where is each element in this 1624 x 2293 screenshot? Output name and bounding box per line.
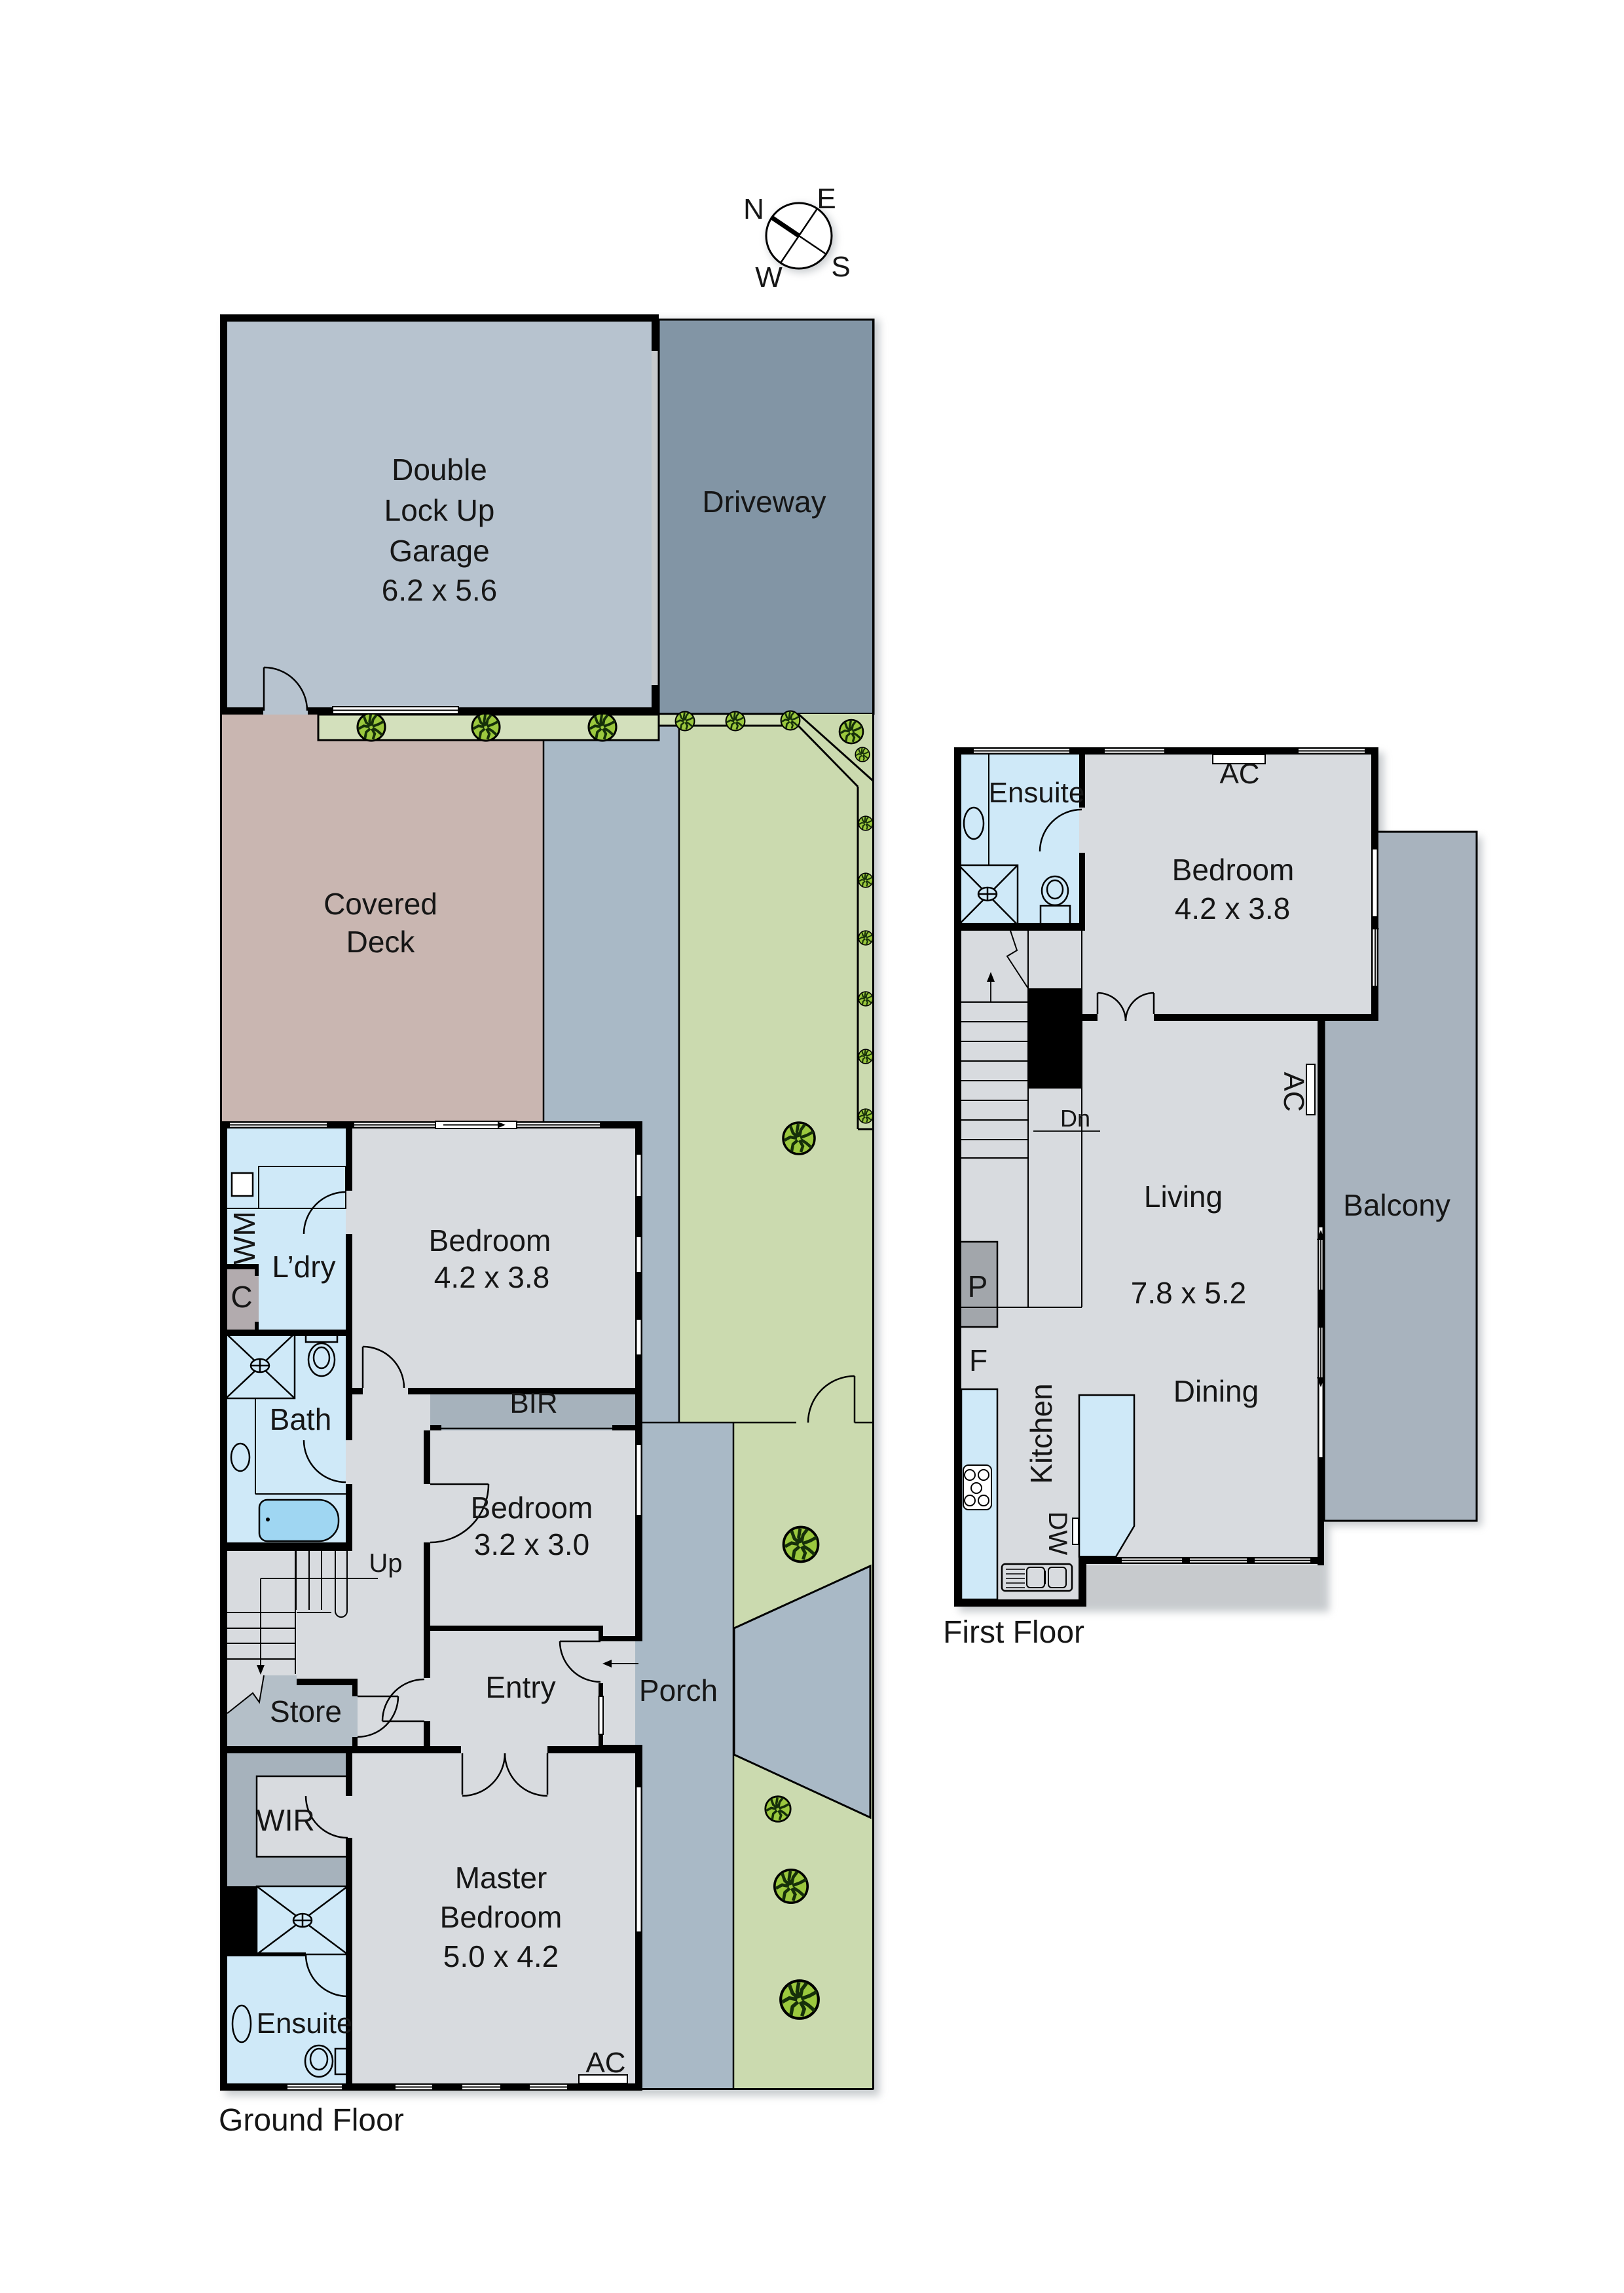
svg-text:Bath: Bath bbox=[270, 1402, 332, 1436]
svg-text:5.0 x 4.2: 5.0 x 4.2 bbox=[443, 1939, 559, 1973]
svg-text:Balcony: Balcony bbox=[1343, 1188, 1450, 1222]
svg-text:Kitchen: Kitchen bbox=[1024, 1383, 1058, 1483]
svg-text:AC: AC bbox=[1278, 1072, 1310, 1111]
svg-text:Deck: Deck bbox=[346, 925, 416, 959]
svg-text:Master: Master bbox=[455, 1861, 547, 1895]
svg-text:Garage: Garage bbox=[389, 534, 489, 568]
svg-text:First Floor: First Floor bbox=[943, 1615, 1084, 1650]
svg-text:S: S bbox=[831, 251, 850, 283]
svg-text:WIR: WIR bbox=[256, 1803, 314, 1837]
svg-text:Bedroom: Bedroom bbox=[471, 1491, 593, 1525]
svg-text:N: N bbox=[743, 193, 764, 225]
svg-text:Bedroom: Bedroom bbox=[440, 1900, 563, 1934]
svg-text:Living: Living bbox=[1144, 1180, 1223, 1214]
svg-text:7.8 x 5.2: 7.8 x 5.2 bbox=[1131, 1276, 1246, 1310]
svg-text:C: C bbox=[231, 1280, 252, 1314]
svg-text:L’dry: L’dry bbox=[272, 1250, 335, 1284]
svg-text:Ensuite: Ensuite bbox=[989, 777, 1085, 809]
svg-text:Covered: Covered bbox=[323, 887, 437, 921]
svg-text:Dn: Dn bbox=[1060, 1105, 1090, 1132]
svg-text:4.2 x 3.8: 4.2 x 3.8 bbox=[1175, 891, 1290, 925]
svg-text:3.2 x 3.0: 3.2 x 3.0 bbox=[474, 1527, 589, 1561]
svg-text:Double: Double bbox=[392, 453, 487, 487]
svg-text:Store: Store bbox=[270, 1694, 342, 1728]
svg-text:Up: Up bbox=[369, 1549, 402, 1578]
svg-text:Porch: Porch bbox=[639, 1673, 718, 1707]
svg-text:6.2 x 5.6: 6.2 x 5.6 bbox=[382, 573, 497, 607]
svg-text:Bedroom: Bedroom bbox=[429, 1223, 551, 1258]
svg-text:AC: AC bbox=[585, 2047, 625, 2079]
svg-text:Driveway: Driveway bbox=[702, 485, 826, 519]
svg-text:WM: WM bbox=[227, 1211, 261, 1265]
svg-text:Lock Up: Lock Up bbox=[384, 493, 495, 527]
svg-text:Entry: Entry bbox=[485, 1670, 555, 1704]
svg-text:BIR: BIR bbox=[509, 1387, 557, 1419]
svg-text:P: P bbox=[968, 1269, 988, 1303]
svg-text:Dining: Dining bbox=[1173, 1374, 1259, 1408]
svg-text:F: F bbox=[969, 1343, 987, 1377]
svg-text:AC: AC bbox=[1219, 758, 1259, 790]
svg-text:4.2 x 3.8: 4.2 x 3.8 bbox=[434, 1260, 549, 1294]
svg-text:Ground Floor: Ground Floor bbox=[219, 2103, 404, 2138]
svg-text:W: W bbox=[755, 261, 783, 293]
svg-text:Ensuite: Ensuite bbox=[257, 2007, 353, 2040]
svg-text:DW: DW bbox=[1043, 1512, 1072, 1556]
svg-text:E: E bbox=[817, 183, 836, 215]
svg-text:Bedroom: Bedroom bbox=[1172, 853, 1295, 887]
